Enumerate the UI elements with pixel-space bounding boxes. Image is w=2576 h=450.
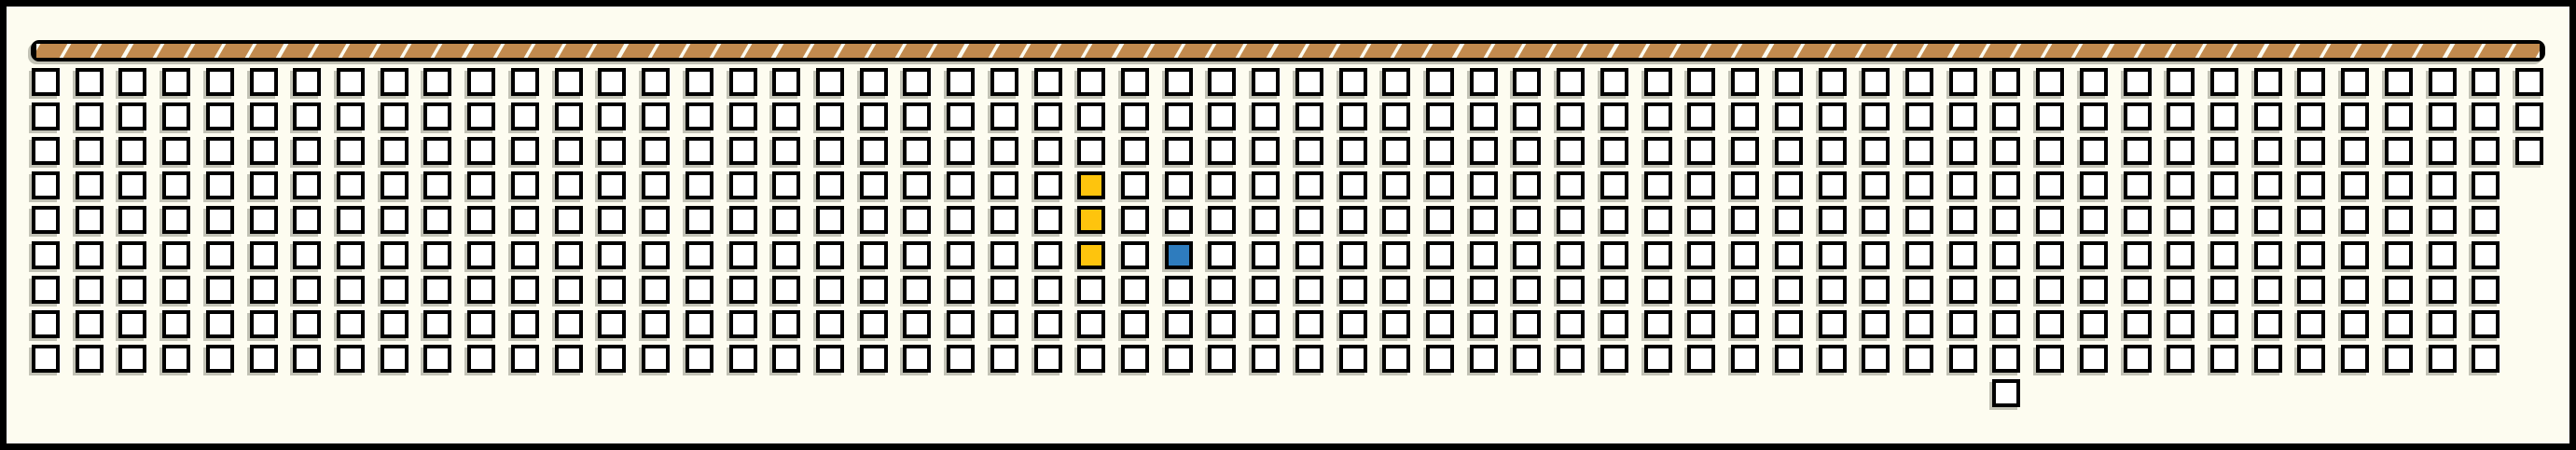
seat-cell[interactable]: [2036, 310, 2064, 338]
seat-cell[interactable]: [2080, 310, 2108, 338]
seat-cell[interactable]: [2254, 206, 2282, 234]
seat-cell[interactable]: [2254, 276, 2282, 304]
seat-cell[interactable]: [206, 68, 234, 96]
seat-cell[interactable]: [1034, 206, 1062, 234]
seat-cell[interactable]: [206, 206, 234, 234]
seat-cell[interactable]: [1208, 345, 1236, 373]
seat-cell[interactable]: [1949, 68, 1977, 96]
seat-cell[interactable]: [1600, 137, 1628, 165]
seat-cell[interactable]: [162, 102, 190, 130]
seat-cell[interactable]: [1339, 206, 1367, 234]
seat-cell[interactable]: [1034, 241, 1062, 269]
seat-cell[interactable]: [729, 206, 757, 234]
seat-cell[interactable]: [1426, 137, 1454, 165]
seat-cell[interactable]: [2385, 171, 2413, 199]
seat-cell[interactable]: [1034, 276, 1062, 304]
seat-cell[interactable]: [772, 345, 800, 373]
seat-cell[interactable]: [250, 310, 278, 338]
seat-cell[interactable]: [467, 206, 495, 234]
seat-cell[interactable]: [381, 206, 409, 234]
seat-cell[interactable]: [206, 171, 234, 199]
seat-cell[interactable]: [1470, 137, 1498, 165]
seat-cell[interactable]: [1949, 345, 1977, 373]
seat-cell[interactable]: [1687, 102, 1715, 130]
seat-cell[interactable]: [1557, 345, 1585, 373]
seat-cell[interactable]: [1382, 68, 1410, 96]
seat-cell[interactable]: [816, 137, 844, 165]
seat-cell[interactable]: [250, 171, 278, 199]
seat-cell[interactable]: [2080, 171, 2108, 199]
seat-cell[interactable]: [2341, 102, 2369, 130]
seat-cell[interactable]: [947, 310, 975, 338]
seat-cell[interactable]: [2210, 102, 2238, 130]
seat-cell[interactable]: [1034, 102, 1062, 130]
seat-cell[interactable]: [990, 137, 1018, 165]
seat-cell[interactable]: [1165, 241, 1193, 269]
seat-cell[interactable]: [293, 241, 321, 269]
seat-cell[interactable]: [2036, 241, 2064, 269]
seat-cell[interactable]: [2167, 68, 2195, 96]
seat-cell[interactable]: [1600, 345, 1628, 373]
seat-cell[interactable]: [2297, 68, 2325, 96]
seat-cell[interactable]: [2472, 206, 2500, 234]
seat-cell[interactable]: [2341, 276, 2369, 304]
seat-cell[interactable]: [990, 241, 1018, 269]
seat-cell[interactable]: [860, 241, 888, 269]
seat-cell[interactable]: [76, 345, 104, 373]
seat-cell[interactable]: [2124, 137, 2152, 165]
seat-cell[interactable]: [1862, 137, 1890, 165]
seat-cell[interactable]: [1513, 241, 1541, 269]
seat-cell[interactable]: [1034, 68, 1062, 96]
seat-cell[interactable]: [1121, 137, 1149, 165]
seat-cell[interactable]: [423, 68, 451, 96]
seat-cell[interactable]: [118, 345, 146, 373]
seat-cell[interactable]: [2297, 102, 2325, 130]
seat-cell[interactable]: [1252, 68, 1280, 96]
seat-cell[interactable]: [1687, 206, 1715, 234]
seat-cell[interactable]: [1121, 206, 1149, 234]
seat-cell[interactable]: [2210, 310, 2238, 338]
seat-cell[interactable]: [1862, 206, 1890, 234]
seat-cell[interactable]: [729, 68, 757, 96]
seat-cell[interactable]: [990, 345, 1018, 373]
seat-cell[interactable]: [947, 345, 975, 373]
seat-cell[interactable]: [1208, 68, 1236, 96]
seat-cell[interactable]: [1121, 102, 1149, 130]
seat-cell[interactable]: [1165, 206, 1193, 234]
seat-cell[interactable]: [1121, 276, 1149, 304]
seat-cell[interactable]: [642, 241, 670, 269]
seat-cell[interactable]: [32, 241, 60, 269]
seat-cell[interactable]: [1426, 102, 1454, 130]
seat-cell[interactable]: [2341, 68, 2369, 96]
seat-cell[interactable]: [337, 310, 365, 338]
seat-cell[interactable]: [642, 102, 670, 130]
seat-cell[interactable]: [1470, 68, 1498, 96]
seat-cell[interactable]: [337, 206, 365, 234]
seat-cell[interactable]: [162, 68, 190, 96]
seat-cell[interactable]: [1992, 345, 2020, 373]
seat-cell[interactable]: [1949, 276, 1977, 304]
seat-cell[interactable]: [2124, 310, 2152, 338]
seat-cell[interactable]: [772, 310, 800, 338]
seat-cell[interactable]: [76, 68, 104, 96]
seat-cell[interactable]: [1600, 171, 1628, 199]
seat-cell[interactable]: [1295, 241, 1323, 269]
seat-cell[interactable]: [598, 310, 626, 338]
seat-cell[interactable]: [2472, 68, 2500, 96]
seat-cell[interactable]: [903, 276, 931, 304]
seat-cell[interactable]: [1992, 206, 2020, 234]
seat-cell[interactable]: [381, 241, 409, 269]
seat-cell[interactable]: [511, 102, 539, 130]
seat-cell[interactable]: [1034, 171, 1062, 199]
seat-cell[interactable]: [990, 171, 1018, 199]
seat-cell[interactable]: [2036, 345, 2064, 373]
seat-cell[interactable]: [337, 102, 365, 130]
seat-cell[interactable]: [381, 68, 409, 96]
seat-cell[interactable]: [423, 276, 451, 304]
seat-cell[interactable]: [1034, 137, 1062, 165]
seat-cell[interactable]: [2341, 241, 2369, 269]
seat-cell[interactable]: [1339, 345, 1367, 373]
seat-cell[interactable]: [903, 206, 931, 234]
seat-cell[interactable]: [1077, 68, 1105, 96]
seat-cell[interactable]: [2385, 206, 2413, 234]
seat-cell[interactable]: [1600, 241, 1628, 269]
seat-cell[interactable]: [511, 310, 539, 338]
seat-cell[interactable]: [816, 345, 844, 373]
seat-cell[interactable]: [555, 310, 583, 338]
seat-cell[interactable]: [511, 206, 539, 234]
seat-cell[interactable]: [293, 345, 321, 373]
seat-cell[interactable]: [1600, 68, 1628, 96]
seat-cell[interactable]: [1905, 206, 1933, 234]
seat-cell[interactable]: [1600, 206, 1628, 234]
seat-cell[interactable]: [2385, 68, 2413, 96]
seat-cell[interactable]: [816, 241, 844, 269]
seat-cell[interactable]: [1382, 241, 1410, 269]
seat-cell[interactable]: [1992, 102, 2020, 130]
seat-cell[interactable]: [1470, 171, 1498, 199]
seat-cell[interactable]: [2429, 241, 2457, 269]
seat-cell[interactable]: [903, 68, 931, 96]
seat-cell[interactable]: [511, 137, 539, 165]
seat-cell[interactable]: [1644, 206, 1672, 234]
seat-cell[interactable]: [2210, 345, 2238, 373]
seat-cell[interactable]: [2385, 276, 2413, 304]
seat-cell[interactable]: [2254, 137, 2282, 165]
seat-cell[interactable]: [947, 68, 975, 96]
seat-cell[interactable]: [1513, 206, 1541, 234]
seat-cell[interactable]: [2036, 68, 2064, 96]
seat-cell[interactable]: [772, 68, 800, 96]
seat-cell[interactable]: [2080, 276, 2108, 304]
seat-cell[interactable]: [816, 206, 844, 234]
seat-cell[interactable]: [2124, 206, 2152, 234]
seat-cell[interactable]: [206, 102, 234, 130]
seat-cell[interactable]: [1949, 171, 1977, 199]
seat-cell[interactable]: [2167, 345, 2195, 373]
seat-cell[interactable]: [1513, 137, 1541, 165]
seat-cell[interactable]: [860, 345, 888, 373]
seat-cell[interactable]: [1295, 102, 1323, 130]
seat-cell[interactable]: [860, 206, 888, 234]
seat-cell[interactable]: [1077, 310, 1105, 338]
seat-cell[interactable]: [250, 241, 278, 269]
seat-cell[interactable]: [1470, 206, 1498, 234]
seat-cell[interactable]: [2210, 171, 2238, 199]
seat-cell[interactable]: [381, 137, 409, 165]
seat-cell[interactable]: [1165, 310, 1193, 338]
seat-cell[interactable]: [1949, 206, 1977, 234]
seat-cell[interactable]: [1905, 137, 1933, 165]
seat-cell[interactable]: [2210, 137, 2238, 165]
seat-cell[interactable]: [1775, 68, 1803, 96]
seat-cell[interactable]: [598, 345, 626, 373]
seat-cell[interactable]: [423, 171, 451, 199]
seat-cell[interactable]: [511, 241, 539, 269]
seat-cell[interactable]: [76, 276, 104, 304]
seat-cell[interactable]: [32, 310, 60, 338]
seat-cell[interactable]: [1339, 102, 1367, 130]
seat-cell[interactable]: [1470, 241, 1498, 269]
seat-cell[interactable]: [816, 171, 844, 199]
seat-cell[interactable]: [729, 345, 757, 373]
seat-cell[interactable]: [816, 310, 844, 338]
seat-cell[interactable]: [2124, 171, 2152, 199]
seat-cell[interactable]: [1644, 345, 1672, 373]
seat-cell[interactable]: [250, 137, 278, 165]
seat-cell[interactable]: [1775, 241, 1803, 269]
seat-cell[interactable]: [1426, 171, 1454, 199]
seat-cell[interactable]: [2124, 276, 2152, 304]
seat-cell[interactable]: [423, 310, 451, 338]
seat-cell[interactable]: [162, 241, 190, 269]
seat-cell[interactable]: [686, 206, 713, 234]
seat-cell[interactable]: [76, 310, 104, 338]
seat-cell[interactable]: [729, 171, 757, 199]
seat-cell[interactable]: [1557, 102, 1585, 130]
seat-cell[interactable]: [293, 206, 321, 234]
seat-cell[interactable]: [903, 171, 931, 199]
seat-cell[interactable]: [772, 137, 800, 165]
seat-cell[interactable]: [1077, 276, 1105, 304]
seat-cell[interactable]: [2036, 206, 2064, 234]
seat-cell[interactable]: [1208, 241, 1236, 269]
seat-cell[interactable]: [1819, 206, 1847, 234]
seat-cell[interactable]: [1644, 310, 1672, 338]
seat-cell[interactable]: [1819, 241, 1847, 269]
seat-cell[interactable]: [903, 310, 931, 338]
seat-cell[interactable]: [423, 137, 451, 165]
seat-cell[interactable]: [1731, 276, 1759, 304]
seat-cell[interactable]: [1339, 276, 1367, 304]
seat-cell[interactable]: [1513, 276, 1541, 304]
seat-cell[interactable]: [1077, 137, 1105, 165]
seat-cell[interactable]: [2472, 310, 2500, 338]
seat-cell[interactable]: [337, 171, 365, 199]
seat-cell[interactable]: [598, 171, 626, 199]
seat-cell[interactable]: [250, 276, 278, 304]
seat-cell[interactable]: [2297, 345, 2325, 373]
seat-cell[interactable]: [118, 241, 146, 269]
seat-cell[interactable]: [1339, 241, 1367, 269]
seat-cell[interactable]: [1077, 102, 1105, 130]
seat-cell[interactable]: [1513, 310, 1541, 338]
seat-cell[interactable]: [337, 137, 365, 165]
seat-cell[interactable]: [2429, 171, 2457, 199]
seat-cell[interactable]: [990, 276, 1018, 304]
seat-cell[interactable]: [293, 310, 321, 338]
seat-cell[interactable]: [555, 171, 583, 199]
seat-cell[interactable]: [2429, 68, 2457, 96]
seat-cell[interactable]: [598, 241, 626, 269]
seat-cell[interactable]: [1949, 102, 1977, 130]
seat-cell[interactable]: [2515, 102, 2543, 130]
seat-cell[interactable]: [2080, 102, 2108, 130]
seat-cell[interactable]: [686, 137, 713, 165]
seat-cell[interactable]: [772, 241, 800, 269]
seat-cell[interactable]: [1382, 345, 1410, 373]
seat-cell[interactable]: [1121, 68, 1149, 96]
seat-cell[interactable]: [118, 171, 146, 199]
seat-cell[interactable]: [467, 171, 495, 199]
seat-cell[interactable]: [32, 171, 60, 199]
seat-cell[interactable]: [1208, 102, 1236, 130]
seat-cell[interactable]: [2036, 171, 2064, 199]
seat-cell[interactable]: [1557, 171, 1585, 199]
seat-cell[interactable]: [1905, 171, 1933, 199]
seat-cell[interactable]: [293, 171, 321, 199]
seat-cell[interactable]: [2080, 68, 2108, 96]
seat-cell[interactable]: [1644, 276, 1672, 304]
seat-cell[interactable]: [642, 171, 670, 199]
seat-cell[interactable]: [555, 137, 583, 165]
seat-cell[interactable]: [2036, 276, 2064, 304]
seat-cell[interactable]: [206, 241, 234, 269]
seat-cell[interactable]: [2254, 171, 2282, 199]
seat-cell[interactable]: [32, 68, 60, 96]
seat-cell[interactable]: [1295, 137, 1323, 165]
seat-cell[interactable]: [2210, 276, 2238, 304]
seat-cell[interactable]: [1775, 310, 1803, 338]
seat-cell[interactable]: [642, 206, 670, 234]
seat-cell[interactable]: [2385, 102, 2413, 130]
seat-cell[interactable]: [947, 102, 975, 130]
seat-cell[interactable]: [206, 345, 234, 373]
seat-cell[interactable]: [1513, 345, 1541, 373]
seat-cell[interactable]: [2472, 276, 2500, 304]
seat-cell[interactable]: [686, 345, 713, 373]
seat-cell[interactable]: [1775, 102, 1803, 130]
seat-cell[interactable]: [1470, 276, 1498, 304]
seat-cell[interactable]: [2515, 68, 2543, 96]
seat-cell[interactable]: [1165, 102, 1193, 130]
seat-cell[interactable]: [423, 102, 451, 130]
seat-cell[interactable]: [1034, 345, 1062, 373]
seat-cell[interactable]: [2167, 310, 2195, 338]
seat-cell[interactable]: [1949, 241, 1977, 269]
seat-cell[interactable]: [642, 276, 670, 304]
seat-cell[interactable]: [2385, 310, 2413, 338]
seat-cell[interactable]: [1295, 206, 1323, 234]
seat-cell[interactable]: [1557, 206, 1585, 234]
seat-cell[interactable]: [1862, 310, 1890, 338]
seat-cell[interactable]: [2297, 310, 2325, 338]
seat-cell[interactable]: [903, 345, 931, 373]
seat-cell[interactable]: [1426, 276, 1454, 304]
seat-cell[interactable]: [2472, 137, 2500, 165]
seat-cell[interactable]: [1862, 276, 1890, 304]
seat-cell[interactable]: [1687, 137, 1715, 165]
seat-cell[interactable]: [1992, 171, 2020, 199]
seat-cell[interactable]: [1600, 102, 1628, 130]
seat-cell[interactable]: [947, 241, 975, 269]
seat-cell[interactable]: [1775, 137, 1803, 165]
seat-cell[interactable]: [686, 310, 713, 338]
seat-cell[interactable]: [337, 241, 365, 269]
seat-cell[interactable]: [2297, 276, 2325, 304]
seat-cell[interactable]: [1382, 310, 1410, 338]
seat-cell[interactable]: [1644, 171, 1672, 199]
seat-cell[interactable]: [337, 345, 365, 373]
seat-cell[interactable]: [2210, 68, 2238, 96]
seat-cell[interactable]: [2297, 241, 2325, 269]
seat-cell[interactable]: [1775, 171, 1803, 199]
seat-cell[interactable]: [686, 68, 713, 96]
seat-cell[interactable]: [162, 310, 190, 338]
seat-cell[interactable]: [1644, 137, 1672, 165]
seat-cell[interactable]: [860, 137, 888, 165]
seat-cell[interactable]: [598, 276, 626, 304]
seat-cell[interactable]: [2167, 171, 2195, 199]
seat-cell[interactable]: [772, 171, 800, 199]
seat-cell[interactable]: [1731, 102, 1759, 130]
seat-cell[interactable]: [1252, 102, 1280, 130]
seat-cell[interactable]: [118, 276, 146, 304]
seat-cell[interactable]: [860, 276, 888, 304]
seat-cell[interactable]: [598, 206, 626, 234]
seat-cell[interactable]: [1775, 206, 1803, 234]
seat-cell[interactable]: [381, 102, 409, 130]
seat-cell[interactable]: [467, 102, 495, 130]
seat-cell[interactable]: [686, 102, 713, 130]
seat-cell[interactable]: [903, 137, 931, 165]
seat-cell[interactable]: [1731, 206, 1759, 234]
seat-cell[interactable]: [1644, 241, 1672, 269]
seat-cell[interactable]: [1470, 310, 1498, 338]
seat-cell[interactable]: [2167, 206, 2195, 234]
seat-cell[interactable]: [1819, 276, 1847, 304]
seat-cell[interactable]: [1731, 310, 1759, 338]
seat-cell[interactable]: [860, 171, 888, 199]
seat-cell[interactable]: [511, 68, 539, 96]
seat-cell[interactable]: [1775, 276, 1803, 304]
seat-cell[interactable]: [1121, 310, 1149, 338]
seat-cell[interactable]: [32, 102, 60, 130]
seat-cell[interactable]: [1949, 137, 1977, 165]
seat-cell[interactable]: [1165, 276, 1193, 304]
seat-cell[interactable]: [206, 276, 234, 304]
seat-cell[interactable]: [2124, 102, 2152, 130]
seat-cell[interactable]: [76, 241, 104, 269]
seat-cell[interactable]: [1731, 345, 1759, 373]
seat-cell[interactable]: [423, 345, 451, 373]
seat-cell[interactable]: [1295, 345, 1323, 373]
seat-cell[interactable]: [337, 276, 365, 304]
